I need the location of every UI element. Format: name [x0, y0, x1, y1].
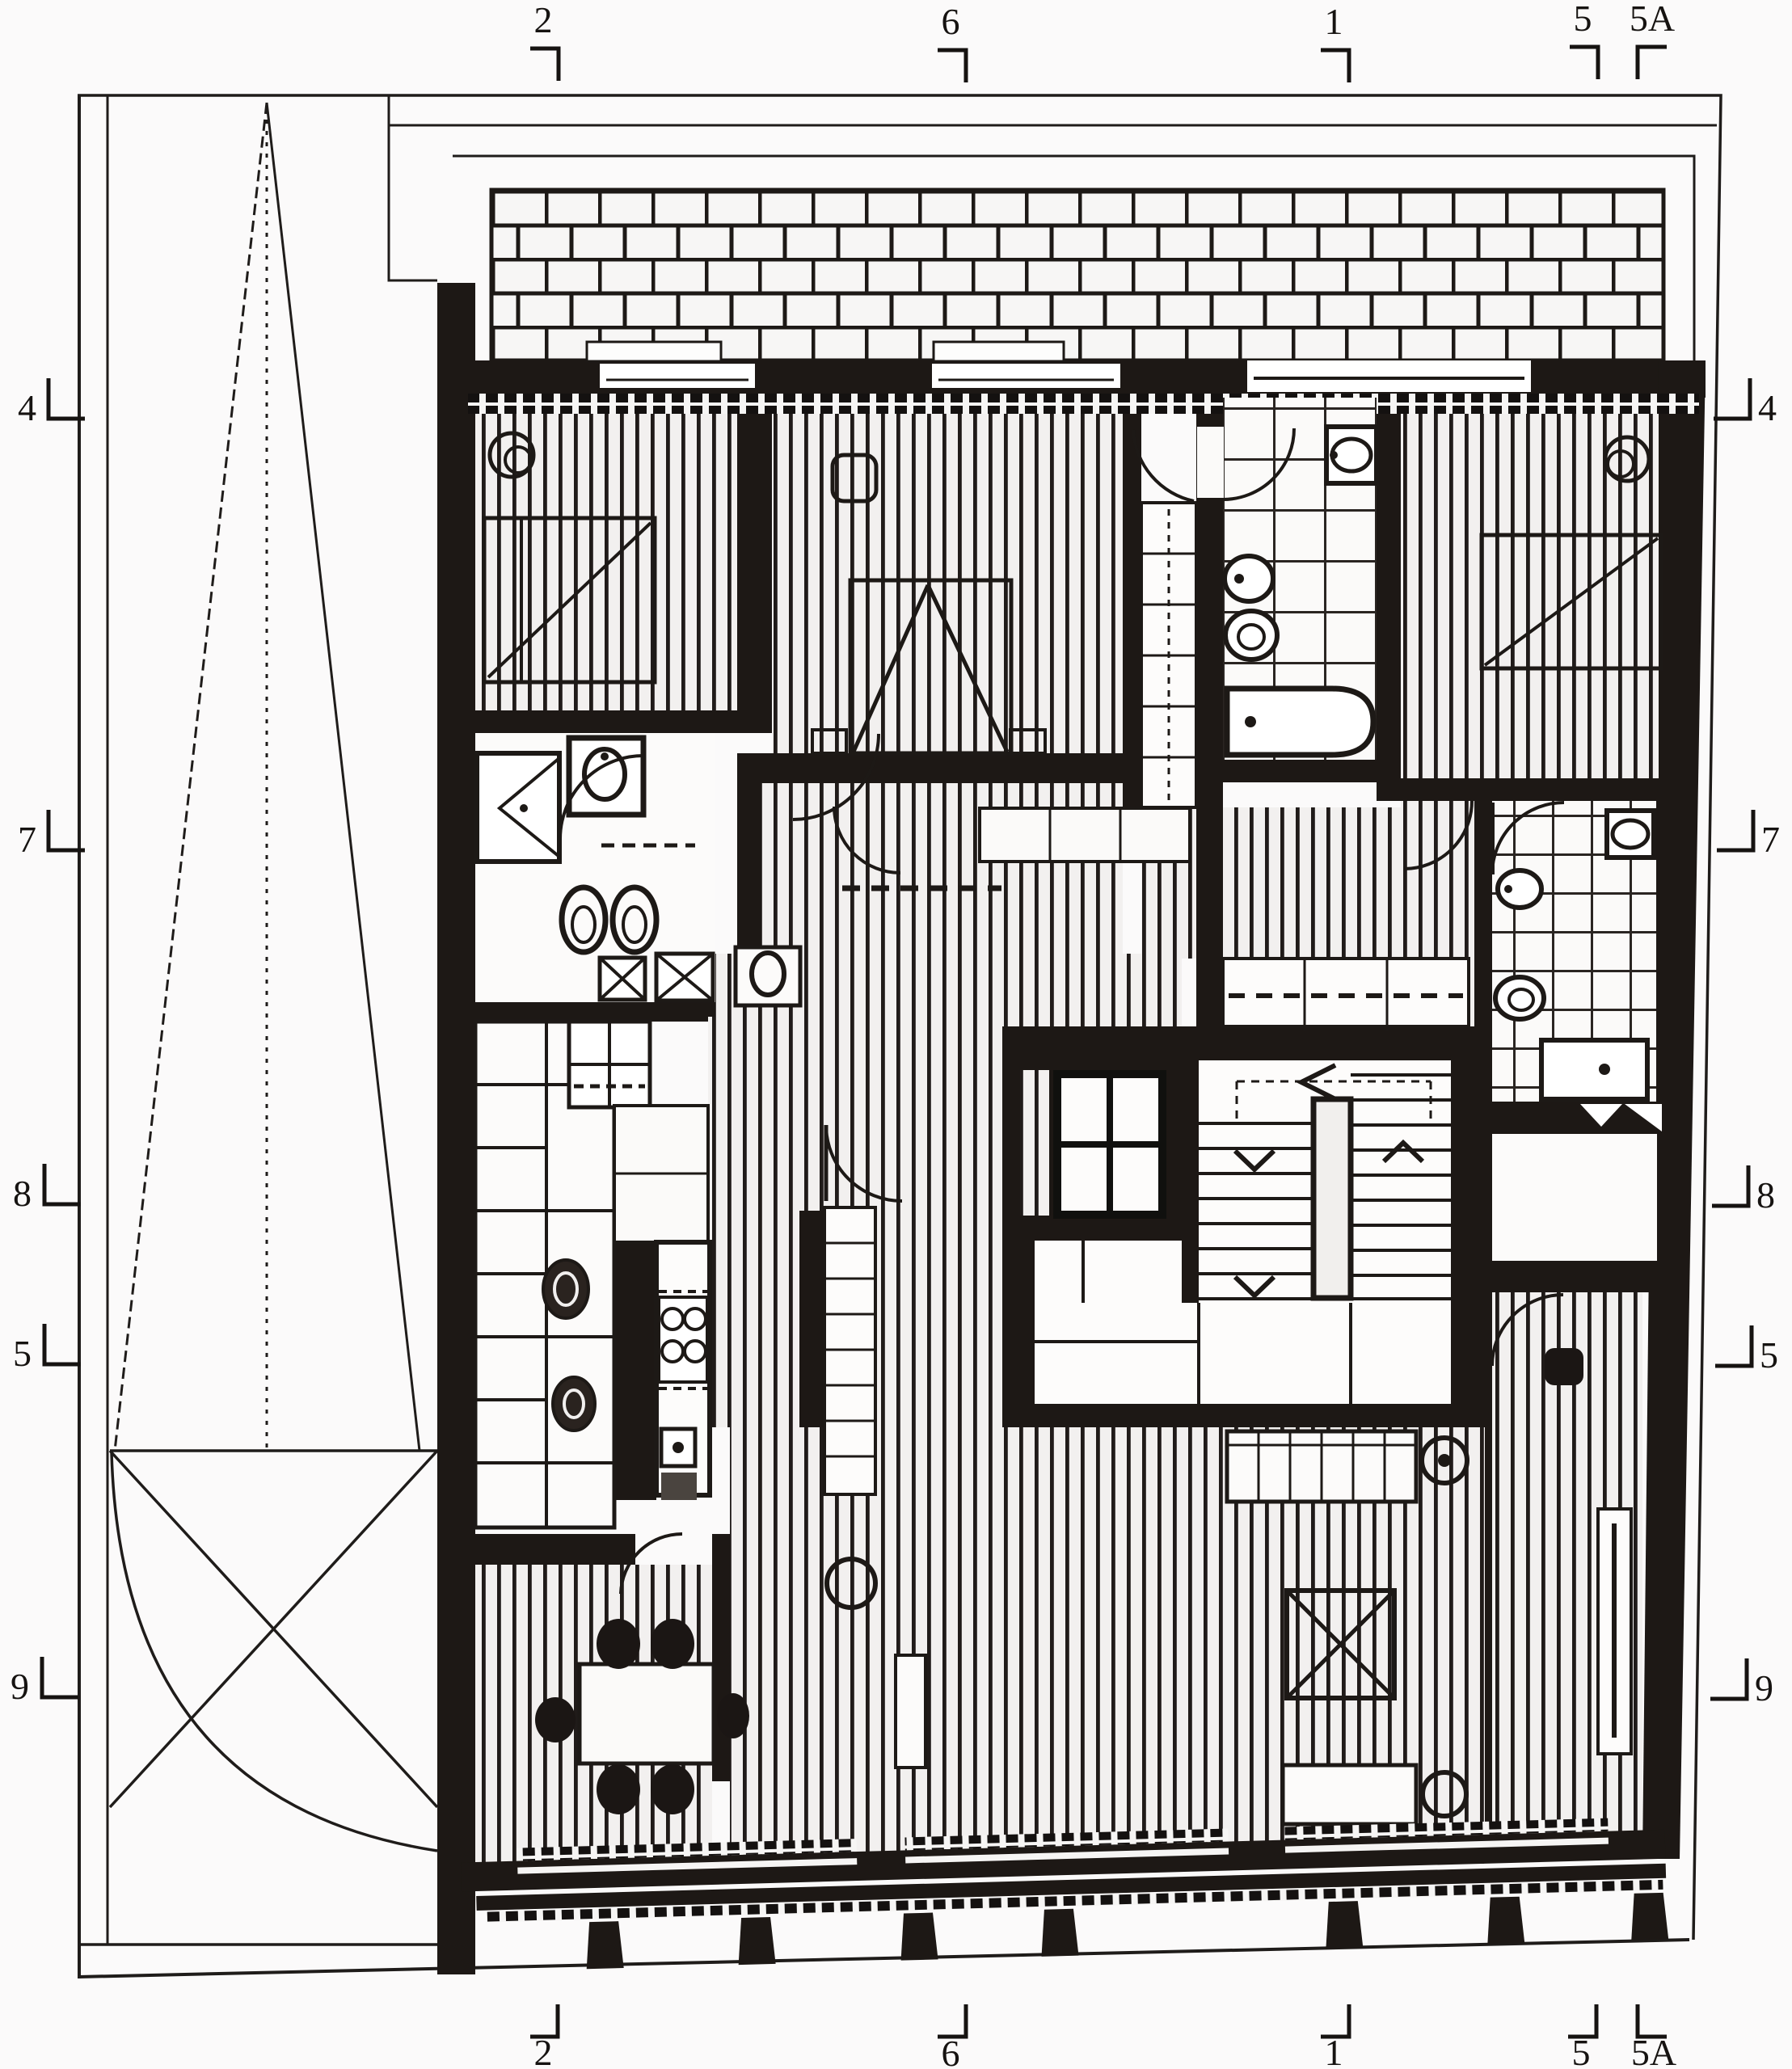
svg-text:7: 7: [1761, 819, 1780, 860]
svg-text:4: 4: [1758, 387, 1777, 428]
svg-text:8: 8: [1756, 1174, 1775, 1216]
svg-text:6: 6: [942, 2033, 960, 2069]
svg-text:5: 5: [1574, 0, 1592, 39]
svg-text:7: 7: [18, 819, 36, 860]
svg-text:2: 2: [534, 0, 553, 40]
svg-text:2: 2: [534, 2032, 553, 2069]
svg-text:5A: 5A: [1630, 0, 1675, 39]
svg-text:1: 1: [1325, 2032, 1343, 2069]
svg-text:5A: 5A: [1631, 2032, 1676, 2069]
svg-text:6: 6: [942, 1, 960, 42]
svg-text:8: 8: [13, 1173, 32, 1214]
svg-text:1: 1: [1325, 1, 1343, 42]
svg-text:5: 5: [1572, 2032, 1591, 2069]
svg-text:5: 5: [13, 1333, 32, 1374]
svg-text:9: 9: [11, 1666, 29, 1707]
svg-text:9: 9: [1755, 1667, 1773, 1709]
svg-text:4: 4: [18, 387, 36, 428]
svg-text:5: 5: [1760, 1334, 1778, 1376]
